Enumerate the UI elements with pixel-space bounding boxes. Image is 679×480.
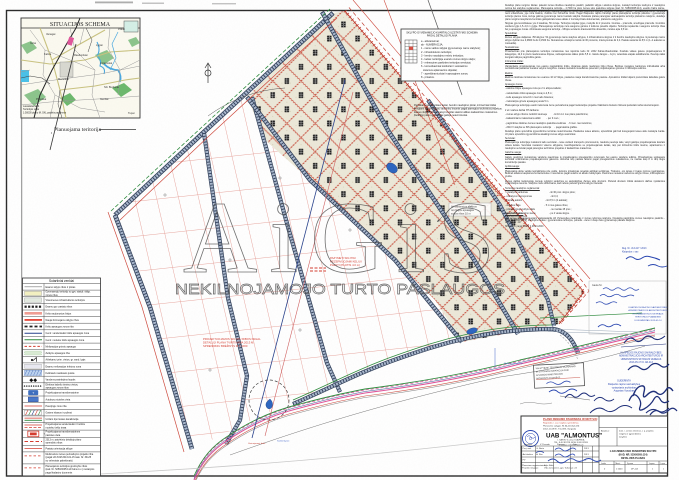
svg-text:taisykles: taisykles	[619, 436, 627, 439]
svg-text:Vandens pratekejimo kryptis: Vandens pratekejimo kryptis	[46, 379, 77, 382]
svg-text:KLAIPEDOS RAJONO SAVIVALDYBES: KLAIPEDOS RAJONO SAVIVALDYBES	[629, 306, 668, 309]
svg-text:Melioracijos grioviu apsauga: Melioracijos grioviu apsauga	[46, 345, 77, 348]
svg-text:sprendiniu ribos: sprendiniu ribos	[46, 442, 64, 445]
svg-text:ADMINISTRACIJOS ARCHITEKTUROS: ADMINISTRACIJOS ARCHITEKTUROS IR	[619, 355, 663, 358]
svg-text:Gatves iskasos ir pylimai: Gatves iskasos ir pylimai	[46, 412, 73, 415]
svg-text:I. KANTO G. 22-2, KLAIPEDA: I. KANTO G. 22-2, KLAIPEDA	[558, 439, 585, 442]
svg-text:Keliu apsaugos zonos riba: Keliu apsaugos zonos riba	[46, 326, 75, 329]
svg-text:KLAIPEDOS RAJONO SAVIVALDYBE: KLAIPEDOS RAJONO SAVIVALDYBES	[621, 352, 662, 355]
svg-text:Centr. nuoteku tinklu apsaugos: Centr. nuoteku tinklu apsaugos zona	[46, 339, 85, 342]
svg-text:Gauta Nr.: Gauta Nr.	[592, 284, 603, 287]
svg-text:Atliekamu tyrim. vietos, gr. v: Atliekamu tyrim. vietos, gr. vand. lygis	[46, 359, 87, 362]
svg-text:DETALUSIS PLANAS: DETALUSIS PLANAS	[621, 457, 645, 460]
svg-text:Kelkrascio sankasos juosta: Kelkrascio sankasos juosta	[46, 372, 76, 375]
svg-text:Projekto rengejas:: Projekto rengejas:	[522, 467, 539, 470]
svg-text:Pavojingu zonu riba: Pavojingu zonu riba	[46, 405, 68, 408]
svg-text:pastotes vieta: pastotes vieta	[46, 434, 61, 437]
svg-text:Esamo sklypo ribos ir plotas: Esamo sklypo ribos ir plotas	[46, 286, 77, 289]
svg-text:Visuomenes infrastrukturos t: Visuomenes infrastrukturos teritorijos	[46, 299, 86, 302]
svg-text:Lapas: Lapas	[649, 463, 654, 465]
svg-text:Lapu: Lapu	[661, 463, 665, 465]
svg-text:Kelio raudonosios linijos: Kelio raudonosios linijos	[46, 312, 72, 315]
svg-text:Zymuo: Zymuo	[627, 463, 634, 465]
svg-text:Esamu gyv. pastatu ribos: Esamu gyv. pastatu ribos	[46, 306, 73, 309]
svg-text:Naujai formuojamu sklypu rib: Naujai formuojamu sklypu ribos	[46, 319, 80, 322]
svg-text:apsaugos zonos ribos: apsaugos zonos ribos	[46, 387, 70, 390]
svg-text:Centr. vandentiekio tinklu aps: Centr. vandentiekio tinklu apsaugos zona	[46, 332, 90, 335]
svg-text:rengimo ir igyvendinimo: rengimo ir igyvendinimo	[619, 433, 642, 436]
svg-text:V. Pavarde: V. Pavarde	[540, 444, 551, 446]
svg-text:G. Berta: G. Berta	[536, 447, 545, 450]
svg-text:PLANO RENGIMO PAGRINDAS IR MOT: PLANO RENGIMO PAGRINDAS IR MOTYVAI:	[543, 417, 598, 421]
svg-text:Reg. Nr. J13-417 / 2013: Reg. Nr. J13-417 / 2013	[622, 247, 647, 250]
svg-text:(KAD. NR. 5250/0005:114): (KAD. NR. 5250/0005:114)	[619, 454, 648, 457]
svg-text:pagal kadastro duomenis: pagal kadastro duomenis	[46, 472, 74, 475]
svg-text:Autobusu stoteles vieta: Autobusu stoteles vieta	[46, 398, 71, 401]
svg-text:Mast.: Mast.	[616, 462, 621, 465]
svg-text:Klaipedos r. sav. tarybos spre: Klaipedos r. sav. tarybos sprendimas	[543, 422, 579, 425]
svg-text:Zum. r. zemes reformos, t. p.: Zum. r. zemes reformos, t. p. projektu	[619, 430, 654, 433]
svg-text:IR URBANISTIKOS SKYRIAUS: IR URBANISTIKOS SKYRIAUS	[633, 312, 664, 315]
svg-text:VALSTYBINE TERITORIJU PLANAV: VALSTYBINE TERITORIJU PLANAVIMO	[536, 365, 576, 370]
svg-text:2012-11-08 Nr. T11-593, Gargz: 2012-11-08 Nr. T11-593, Gargzdai	[543, 428, 577, 431]
svg-text:Zeldynu apsaugos riba: Zeldynu apsaugos riba	[46, 352, 71, 355]
svg-text:URBANISTIKOS SKYRIAUS VEDEJA: URBANISTIKOS SKYRIAUS VEDEJAS	[621, 358, 662, 361]
svg-text:Augustas Vysockas: Augustas Vysockas	[614, 390, 636, 393]
svg-text:1:1000: 1:1000	[616, 469, 623, 471]
svg-text:Planavimo organizatorius:: Planavimo organizatorius:	[522, 464, 546, 467]
svg-text:Planavimo salygos Nr. At-1413-: Planavimo salygos Nr. At-1413-(14.8)	[543, 425, 580, 428]
svg-text:Egle Baltr.: Egle Baltr.	[544, 464, 554, 467]
svg-text:Esamu melioracijos rinktuvu: Esamu melioracijos rinktuvu zona	[46, 365, 82, 368]
svg-text:Uzdaro tipo lietaus kanaliza: Uzdaro tipo lietaus kanalizacija	[46, 418, 79, 421]
svg-text:DOKUMENTAS 2013-05-14: DOKUMENTAS 2013-05-14	[634, 319, 662, 322]
svg-text:2013-05-17 Nr. AR-413: 2013-05-17 Nr. AR-413	[629, 361, 653, 364]
svg-text:Pastato orientacija sklype: Pastato orientacija sklype	[46, 448, 74, 451]
svg-text:A. Rim.: A. Rim.	[536, 453, 543, 456]
svg-text:Pareigos: Pareigos	[524, 444, 532, 446]
svg-text:UAB "ALMONTUS": UAB "ALMONTUS"	[546, 433, 602, 440]
svg-text:Proj. vad.: Proj. vad.	[523, 447, 532, 450]
svg-text:ADMINISTRACIJOS ARCHITEKTUROS: ADMINISTRACIJOS ARCHITEKTUROS	[628, 309, 668, 312]
svg-text:Parasas: Parasas	[557, 444, 564, 446]
svg-text:Projektuojama transformatorin: Projektuojama transformatorine	[46, 392, 80, 395]
svg-text:DP-114: DP-114	[631, 469, 639, 471]
svg-text:nuoteku tinklu trasa: nuoteku tinklu trasa	[46, 426, 67, 429]
svg-text:Sutartiniai zenklai: Sutartiniai zenklai	[49, 279, 74, 283]
svg-text:Atsakius:: Atsakius:	[601, 430, 610, 433]
svg-text:Vida Jonusiene, gyv. Taikos pr: Vida Jonusiene, gyv. Taikos pr. 24	[544, 467, 578, 470]
svg-text:◆◆: ◆◆	[29, 378, 37, 384]
svg-text:Klaipedos r. sav.: Klaipedos r. sav.	[622, 250, 639, 253]
svg-text:su velesniais pakeitimais): su velesniais pakeitimais)	[46, 460, 73, 463]
svg-text:T: T	[32, 391, 34, 395]
svg-text:Architektas: Architektas	[523, 453, 533, 456]
svg-text:1-OJI ZEMES UKIO PASKIRTIES SK: 1-OJI ZEMES UKIO PASKIRTIES SKLYPO	[610, 450, 657, 453]
svg-text:zonos ribos: zonos ribos	[46, 294, 59, 297]
svg-text:TERITORIJU PLANAVIMO: TERITORIJU PLANAVIMO	[635, 316, 661, 319]
